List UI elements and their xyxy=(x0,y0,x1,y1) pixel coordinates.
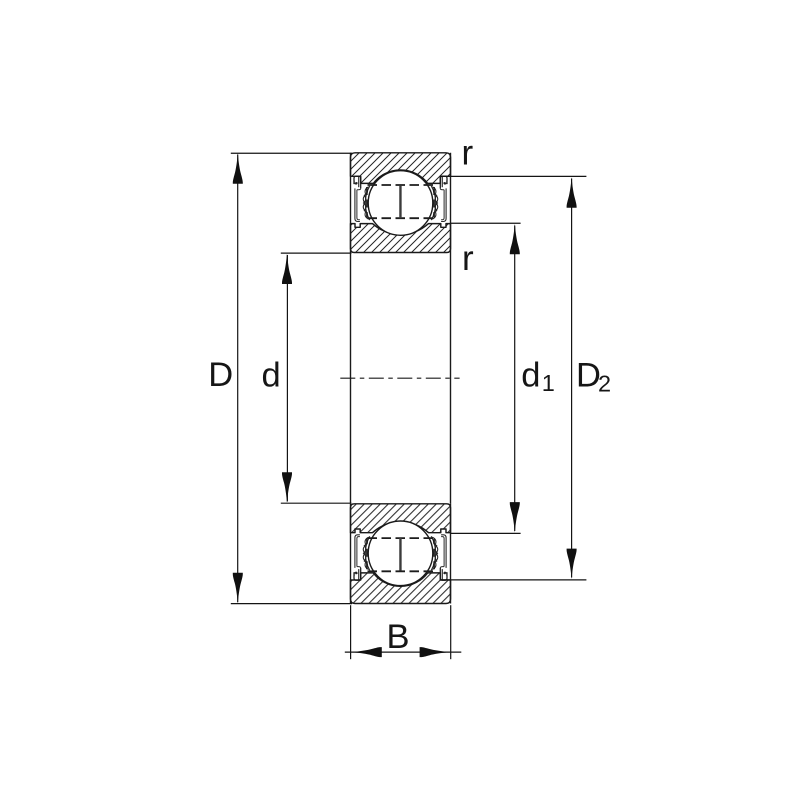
svg-text:1: 1 xyxy=(542,370,555,396)
svg-text:D: D xyxy=(208,356,233,394)
svg-text:r: r xyxy=(462,239,474,278)
svg-text:d: d xyxy=(521,356,540,394)
svg-text:2: 2 xyxy=(598,370,611,396)
svg-text:B: B xyxy=(387,618,410,656)
svg-text:d: d xyxy=(262,356,281,394)
svg-text:r: r xyxy=(462,134,474,173)
